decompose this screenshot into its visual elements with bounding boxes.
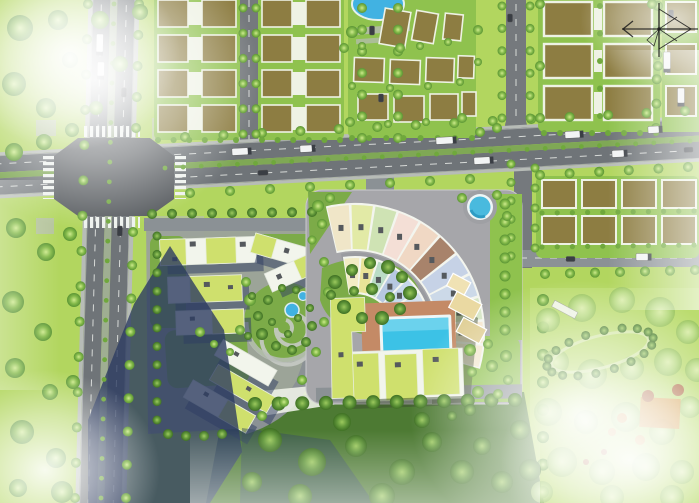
tree bbox=[248, 292, 256, 300]
bush bbox=[488, 149, 493, 154]
tree bbox=[210, 340, 218, 348]
bush bbox=[585, 244, 590, 249]
building-roof bbox=[262, 0, 292, 27]
bush bbox=[104, 298, 109, 303]
tree bbox=[307, 321, 317, 331]
tree bbox=[357, 25, 367, 35]
bush bbox=[344, 156, 349, 161]
tree bbox=[346, 264, 358, 276]
tree bbox=[424, 82, 432, 90]
bush bbox=[416, 153, 421, 158]
bush bbox=[105, 258, 110, 263]
tree bbox=[77, 246, 87, 256]
truck bbox=[300, 145, 316, 153]
tree bbox=[308, 236, 317, 245]
tree bbox=[526, 69, 535, 78]
bush bbox=[589, 130, 595, 136]
roof-access-box bbox=[363, 273, 368, 279]
bush bbox=[469, 135, 475, 141]
roof-link bbox=[292, 2, 306, 25]
tree bbox=[535, 113, 545, 123]
tree bbox=[248, 397, 262, 411]
tree bbox=[411, 120, 421, 130]
tree bbox=[126, 294, 136, 304]
bush bbox=[103, 318, 108, 323]
tree bbox=[319, 396, 333, 410]
tree bbox=[153, 342, 162, 351]
tree bbox=[390, 395, 404, 409]
tree bbox=[311, 347, 321, 357]
roof-link bbox=[292, 72, 306, 95]
tree bbox=[287, 345, 297, 355]
tree bbox=[531, 164, 540, 173]
building-roof bbox=[426, 58, 455, 83]
tree bbox=[257, 411, 267, 421]
roof-access-box bbox=[442, 273, 447, 279]
tree bbox=[301, 337, 311, 347]
building-roof bbox=[262, 70, 292, 97]
tree bbox=[366, 283, 378, 295]
tree bbox=[153, 324, 162, 333]
tree bbox=[385, 178, 395, 188]
bush bbox=[470, 150, 475, 155]
roof-access-box bbox=[414, 244, 419, 250]
tree bbox=[594, 167, 604, 177]
tree bbox=[295, 126, 305, 136]
roof-access-box bbox=[358, 224, 363, 230]
bush bbox=[597, 113, 603, 119]
tree bbox=[326, 290, 336, 300]
tree bbox=[306, 304, 314, 312]
tree bbox=[348, 82, 356, 90]
building-roof bbox=[262, 105, 292, 132]
tree bbox=[244, 332, 252, 340]
building-roof bbox=[430, 94, 458, 120]
building-roof bbox=[306, 0, 340, 27]
tree bbox=[181, 431, 191, 441]
tree bbox=[312, 200, 324, 212]
tree bbox=[76, 281, 86, 291]
bush bbox=[289, 159, 294, 164]
tree bbox=[195, 327, 205, 337]
tree bbox=[153, 250, 162, 259]
car bbox=[370, 26, 375, 35]
site-plan-rendering bbox=[0, 0, 699, 503]
tree bbox=[425, 176, 435, 186]
tree bbox=[125, 360, 135, 370]
bush bbox=[362, 155, 367, 160]
tree bbox=[235, 325, 245, 335]
tree bbox=[500, 253, 511, 264]
tree bbox=[381, 260, 395, 274]
bush bbox=[398, 153, 403, 158]
tree bbox=[256, 328, 268, 340]
tree bbox=[357, 90, 367, 100]
tree bbox=[416, 42, 424, 50]
tree bbox=[334, 124, 344, 134]
tree bbox=[153, 268, 162, 277]
tree bbox=[500, 271, 511, 282]
tree bbox=[328, 275, 342, 289]
tree bbox=[498, 46, 507, 55]
tree bbox=[498, 69, 507, 78]
tree bbox=[492, 190, 502, 200]
tree bbox=[345, 180, 355, 190]
tree bbox=[263, 295, 273, 305]
tree bbox=[253, 311, 263, 321]
tree bbox=[396, 271, 408, 283]
tree bbox=[422, 118, 430, 126]
tree bbox=[271, 341, 281, 351]
tree bbox=[226, 348, 234, 356]
tree bbox=[535, 61, 545, 71]
tree bbox=[358, 42, 366, 50]
tree bbox=[526, 46, 535, 55]
tree bbox=[474, 58, 482, 66]
bush bbox=[418, 135, 424, 141]
tree bbox=[346, 26, 358, 38]
tree bbox=[317, 219, 327, 229]
bush bbox=[600, 210, 605, 215]
bush bbox=[600, 244, 605, 249]
bush bbox=[541, 130, 547, 136]
tree bbox=[531, 204, 540, 213]
roof-access-box bbox=[397, 234, 402, 240]
building-roof bbox=[462, 92, 476, 116]
tree bbox=[75, 317, 85, 327]
tree bbox=[357, 3, 367, 13]
tree bbox=[393, 3, 403, 13]
tree bbox=[590, 268, 600, 278]
tree bbox=[394, 303, 406, 315]
bush bbox=[579, 144, 584, 149]
bush bbox=[507, 148, 512, 153]
building-roof bbox=[542, 180, 576, 208]
car bbox=[379, 94, 384, 102]
tree bbox=[393, 68, 403, 78]
building-roof bbox=[262, 35, 292, 62]
tree bbox=[305, 182, 315, 192]
bush bbox=[539, 210, 544, 215]
tree bbox=[456, 78, 464, 86]
tree bbox=[500, 235, 511, 246]
roof-access-box bbox=[387, 284, 392, 290]
car bbox=[508, 14, 513, 22]
bush bbox=[102, 357, 107, 362]
tree bbox=[345, 117, 355, 127]
bush bbox=[561, 145, 566, 150]
tree bbox=[295, 396, 309, 410]
tree bbox=[364, 257, 376, 269]
tree bbox=[153, 287, 162, 296]
roof-access-box bbox=[376, 277, 381, 283]
bush bbox=[400, 135, 406, 141]
central-fountain bbox=[463, 190, 497, 224]
tree bbox=[492, 123, 502, 133]
tree bbox=[473, 25, 483, 35]
tree bbox=[565, 168, 575, 178]
tree bbox=[127, 260, 137, 270]
tree bbox=[498, 91, 507, 100]
tree bbox=[393, 111, 403, 121]
tree bbox=[507, 160, 516, 169]
roof-access-box bbox=[338, 225, 343, 231]
tree bbox=[74, 352, 84, 362]
site-plan-canvas bbox=[0, 0, 699, 503]
roof-link bbox=[292, 37, 306, 60]
tree bbox=[526, 114, 535, 123]
tree bbox=[279, 397, 289, 407]
tree bbox=[292, 286, 300, 294]
bush bbox=[597, 143, 602, 148]
tree bbox=[372, 122, 382, 132]
tree bbox=[498, 24, 507, 33]
tree bbox=[444, 38, 452, 46]
tree bbox=[393, 90, 403, 100]
bush bbox=[290, 137, 296, 143]
tree bbox=[386, 84, 394, 92]
tree bbox=[498, 2, 507, 11]
tree bbox=[153, 232, 162, 241]
tree bbox=[153, 305, 162, 314]
tree bbox=[278, 284, 286, 292]
bush bbox=[275, 137, 281, 143]
tree bbox=[385, 292, 395, 302]
building-roof bbox=[306, 70, 340, 97]
bush bbox=[570, 244, 575, 249]
tree bbox=[163, 429, 173, 439]
tree bbox=[531, 244, 540, 253]
bush bbox=[585, 210, 590, 215]
tree bbox=[265, 184, 275, 194]
tree bbox=[498, 114, 507, 123]
bush bbox=[383, 135, 389, 141]
roof-access-box bbox=[397, 293, 402, 299]
tree bbox=[526, 2, 535, 11]
tree bbox=[241, 277, 251, 287]
bush bbox=[557, 130, 563, 136]
tree bbox=[268, 318, 276, 326]
bush bbox=[306, 137, 312, 143]
tree bbox=[565, 268, 575, 278]
tree bbox=[531, 184, 540, 193]
truck bbox=[436, 136, 457, 144]
tree bbox=[333, 413, 351, 431]
tree bbox=[339, 43, 349, 53]
tree bbox=[343, 396, 357, 410]
bush bbox=[366, 135, 372, 141]
bush bbox=[543, 146, 548, 151]
bush bbox=[452, 151, 457, 156]
roof-link bbox=[594, 92, 602, 114]
building-roof bbox=[458, 56, 475, 79]
tree bbox=[357, 68, 367, 78]
tree bbox=[319, 257, 329, 267]
bush bbox=[570, 210, 575, 215]
tree bbox=[366, 395, 380, 409]
tree bbox=[356, 312, 368, 324]
tree bbox=[526, 24, 535, 33]
tree bbox=[507, 178, 516, 187]
building-roof bbox=[443, 13, 464, 41]
tree bbox=[67, 293, 81, 307]
bush bbox=[434, 152, 439, 157]
building-roof bbox=[412, 10, 439, 43]
tree bbox=[294, 314, 302, 322]
roof-access-box bbox=[429, 257, 434, 263]
tree bbox=[540, 269, 550, 279]
tree bbox=[457, 193, 467, 203]
tree bbox=[475, 127, 485, 137]
tree bbox=[395, 43, 405, 53]
tree bbox=[502, 211, 512, 221]
tree bbox=[357, 133, 367, 143]
tree bbox=[565, 112, 575, 122]
roof-access-box bbox=[378, 227, 383, 233]
bush bbox=[539, 244, 544, 249]
tree bbox=[375, 311, 389, 325]
truck bbox=[474, 156, 494, 164]
bush bbox=[321, 137, 327, 143]
bush bbox=[337, 137, 343, 143]
tree bbox=[384, 120, 392, 128]
tree bbox=[393, 25, 403, 35]
tree bbox=[465, 174, 475, 184]
bush bbox=[103, 338, 108, 343]
bush bbox=[104, 278, 109, 283]
tree bbox=[153, 360, 162, 369]
tree bbox=[500, 199, 511, 210]
car bbox=[566, 257, 575, 262]
bush bbox=[525, 147, 530, 152]
tree bbox=[526, 91, 535, 100]
tree bbox=[457, 113, 467, 123]
tree bbox=[349, 286, 359, 296]
bush bbox=[555, 210, 560, 215]
truck bbox=[565, 131, 584, 139]
tree bbox=[284, 330, 292, 338]
bush bbox=[307, 158, 312, 163]
tree bbox=[287, 207, 297, 217]
building-roof bbox=[306, 35, 340, 62]
bush bbox=[555, 244, 560, 249]
bush bbox=[349, 135, 355, 141]
bush bbox=[105, 239, 110, 244]
tree bbox=[297, 375, 307, 385]
building-roof bbox=[542, 216, 576, 244]
tree bbox=[319, 317, 329, 327]
tree bbox=[267, 208, 277, 218]
tree bbox=[531, 224, 540, 233]
bush bbox=[271, 160, 276, 165]
bush bbox=[380, 154, 385, 159]
bush bbox=[326, 157, 331, 162]
tree bbox=[357, 111, 367, 121]
tree bbox=[125, 327, 135, 337]
tree bbox=[337, 300, 351, 314]
tree bbox=[325, 193, 335, 203]
